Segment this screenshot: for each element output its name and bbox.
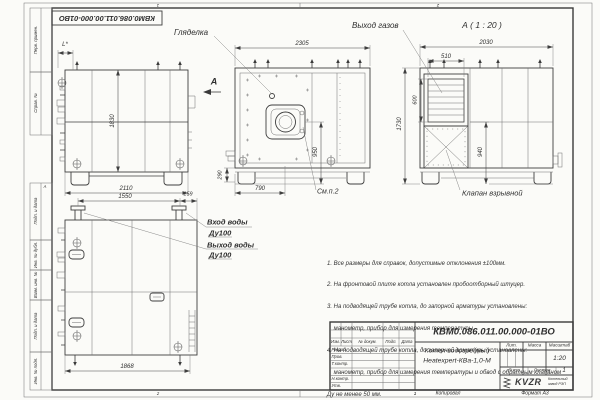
view-a-title: А ( 1 : 20 ): [462, 21, 502, 30]
dim-1550: 1550: [118, 194, 131, 200]
titleblock-col-podp: Подп.: [385, 340, 396, 344]
label-water-inlet-size: Ду100: [209, 229, 231, 237]
format-label: Формат А3: [521, 391, 548, 396]
logo-subtext-line2: завод РЭП: [548, 383, 566, 387]
titleblock-col-doc: № докум.: [358, 340, 376, 344]
dim-l-star: L*: [62, 42, 68, 48]
note-line: 2. На фронтовой плите котла установлен п…: [327, 282, 561, 289]
label-water-outlet-size: Ду100: [209, 251, 231, 259]
dim-940: 940: [478, 147, 484, 157]
dim-1868: 1868: [120, 364, 133, 370]
zone-mark: 2: [157, 391, 159, 395]
label-peephole: Гляделка: [174, 29, 208, 37]
label-explosion-valve: Клапан взрывной: [462, 189, 523, 197]
copied-label: Копировал: [436, 391, 461, 396]
drawing-sheet: КВМ0.086.011.00.000-01ВО 1 2 2 1 А Перв.…: [0, 0, 600, 400]
dim-290: 290: [218, 170, 224, 179]
titleblock-mass-header: Масса: [528, 344, 542, 349]
view-rear-a: [402, 30, 562, 190]
titleblock-row-prov: Пров.: [332, 355, 343, 359]
titleblock-sheet-label: Лист: [508, 369, 520, 374]
label-see-note: См.п.2: [317, 189, 339, 196]
titleblock-name-line1: Котел водогрейный: [425, 349, 490, 356]
titleblock-row-nkontr: Н.контр.: [332, 377, 350, 381]
logo-text: KVZR: [515, 377, 542, 387]
note-line: 3. На подводящей трубе котла, до запорно…: [327, 304, 561, 311]
titleblock-name-line2: Heatexpert-КВа-1,0-М: [423, 359, 490, 366]
frame-side-label: Подп. и дата: [34, 198, 38, 225]
titleblock-row-tkontr: Т.контр.: [332, 362, 349, 366]
dim-1730: 1730: [397, 117, 403, 130]
frame-side-label: Взам. инв. №: [34, 272, 38, 299]
titleblock-sheets-value: 1: [562, 368, 565, 374]
titleblock-scale-header: Масштаб: [549, 344, 570, 349]
frame-side-label: Подп. и дата: [34, 313, 38, 340]
view-side-left: [57, 50, 221, 196]
zone-mark: 1: [157, 2, 159, 6]
frame-side-label: Инв. № подл.: [34, 358, 38, 385]
label-water-inlet: Вход воды: [207, 218, 248, 226]
titleblock-doc-number: КВМ0.086.011.00.000-01ВО: [433, 327, 555, 337]
dim-950: 950: [313, 147, 319, 157]
titleblock-sheets-label: Листов: [534, 369, 551, 374]
label-water-outlet: Выход воды: [207, 241, 254, 249]
note-line: 1. Все размеры для справок, допустимые о…: [327, 261, 561, 268]
titleblock-scale-value: 1:20: [553, 355, 566, 362]
dim-510: 510: [441, 54, 451, 60]
frame-side-label: Инв. № дубл.: [34, 242, 38, 268]
dim-2305: 2305: [295, 41, 308, 47]
titleblock-col-data: Дата: [401, 340, 412, 344]
dim-2110: 2110: [120, 186, 133, 192]
titleblock-row-razrab: Разраб.: [332, 347, 347, 351]
titleblock-col-list: Лист: [341, 340, 352, 344]
dim-790: 790: [255, 186, 265, 192]
dim-2030: 2030: [479, 40, 492, 46]
dim-159: 159: [183, 192, 192, 198]
top-stamp: КВМ0.086.011.00.000-01ВО: [59, 14, 155, 22]
frame-side-label: Перв. примен.: [34, 26, 38, 55]
titleblock-row-utv: Утв.: [332, 384, 342, 388]
section-arrow-letter: А: [211, 78, 218, 87]
titleblock-col-izm: Изм.: [331, 340, 340, 344]
label-gas-outlet: Выход газов: [352, 22, 399, 30]
dim-1830: 1830: [110, 114, 116, 127]
view-front: [214, 36, 370, 196]
strip-digit: 1: [414, 391, 416, 395]
zone-mark: А: [44, 185, 47, 189]
dim-600: 600: [413, 95, 419, 104]
frame-side-label: Справ. №: [34, 93, 38, 113]
zone-mark: 2: [437, 2, 439, 6]
titleblock-lit-header: Лит.: [506, 344, 517, 349]
